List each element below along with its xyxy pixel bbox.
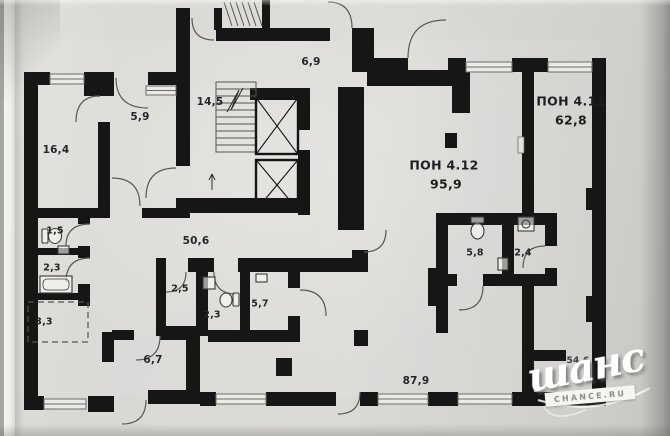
window — [146, 86, 176, 95]
bathtub-icon — [40, 276, 72, 293]
window — [458, 394, 512, 404]
door-arc — [192, 18, 214, 40]
sink-icon — [58, 246, 69, 254]
window — [466, 62, 512, 72]
window — [50, 74, 84, 84]
sink-icon — [256, 274, 267, 282]
window — [548, 62, 592, 72]
column — [276, 358, 292, 376]
toilet-icon — [471, 217, 484, 239]
column — [354, 330, 368, 346]
shower-tray-icon — [203, 277, 215, 289]
washer-icon — [518, 217, 534, 231]
floor-plan-drawing — [0, 0, 670, 436]
window — [378, 394, 428, 404]
service-hatch-icon — [498, 258, 508, 270]
door-arc — [122, 400, 146, 424]
toilet-icon — [42, 229, 62, 244]
toilet-icon — [220, 293, 239, 307]
floor-plan-photo: ПОН 4.11 62,8 ПОН 4.12 95,9 16,4 5,9 14,… — [0, 0, 670, 436]
wall-niche — [518, 137, 524, 153]
column — [445, 133, 457, 148]
window — [44, 399, 86, 409]
door-arc — [328, 2, 352, 28]
window — [216, 394, 266, 404]
